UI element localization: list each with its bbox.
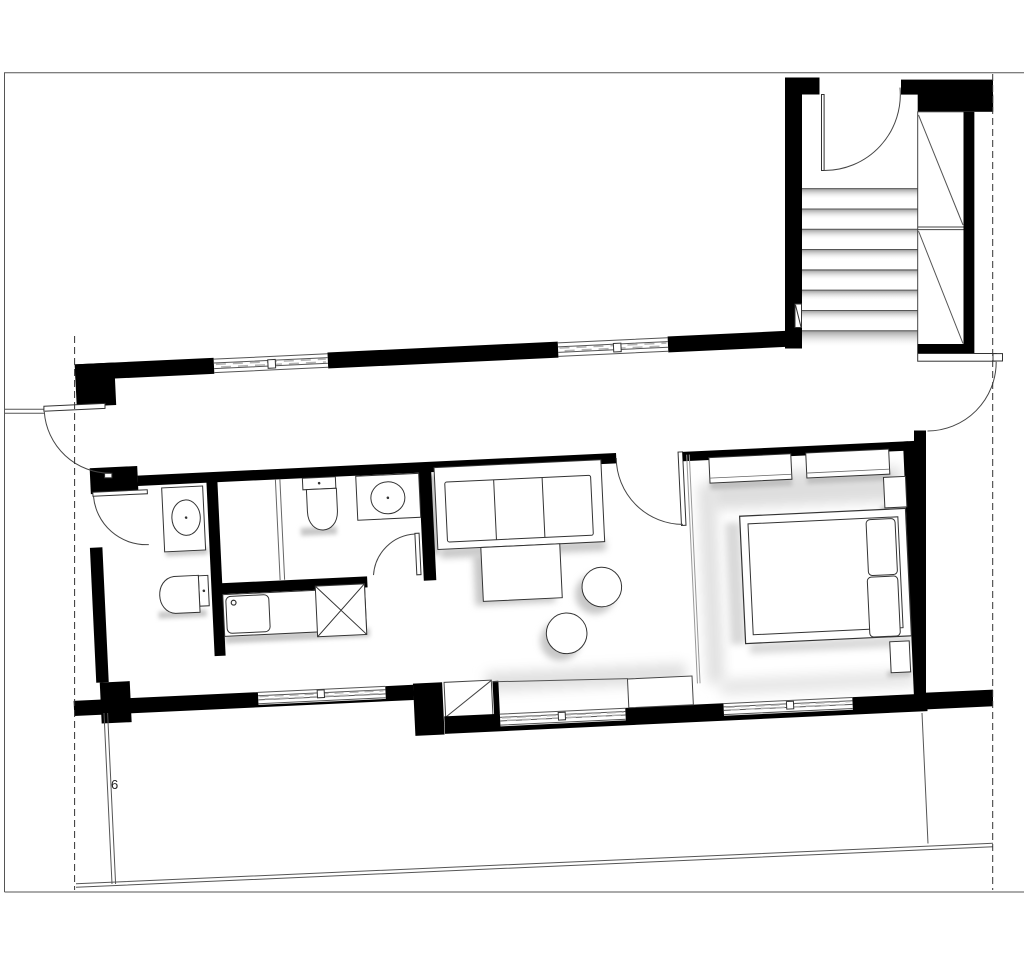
svg-text:6: 6 xyxy=(111,777,118,792)
